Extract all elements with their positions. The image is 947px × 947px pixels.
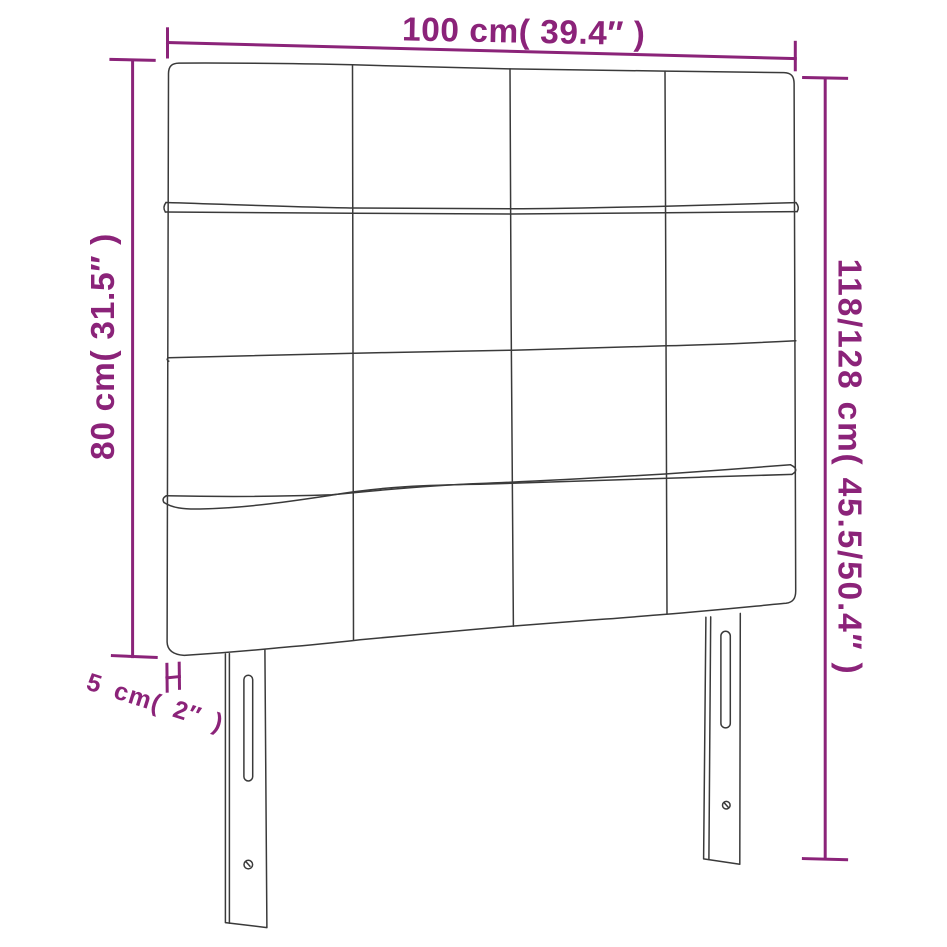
svg-text:100 cm( 39.4″ ): 100 cm( 39.4″ ) [402,11,646,53]
svg-text:5 cm( 2″ ): 5 cm( 2″ ) [83,668,227,738]
svg-text:80 cm( 31.5″ ): 80 cm( 31.5″ ) [85,233,122,460]
svg-text:118/128 cm( 45.5/50.4″ ): 118/128 cm( 45.5/50.4″ ) [831,259,868,676]
